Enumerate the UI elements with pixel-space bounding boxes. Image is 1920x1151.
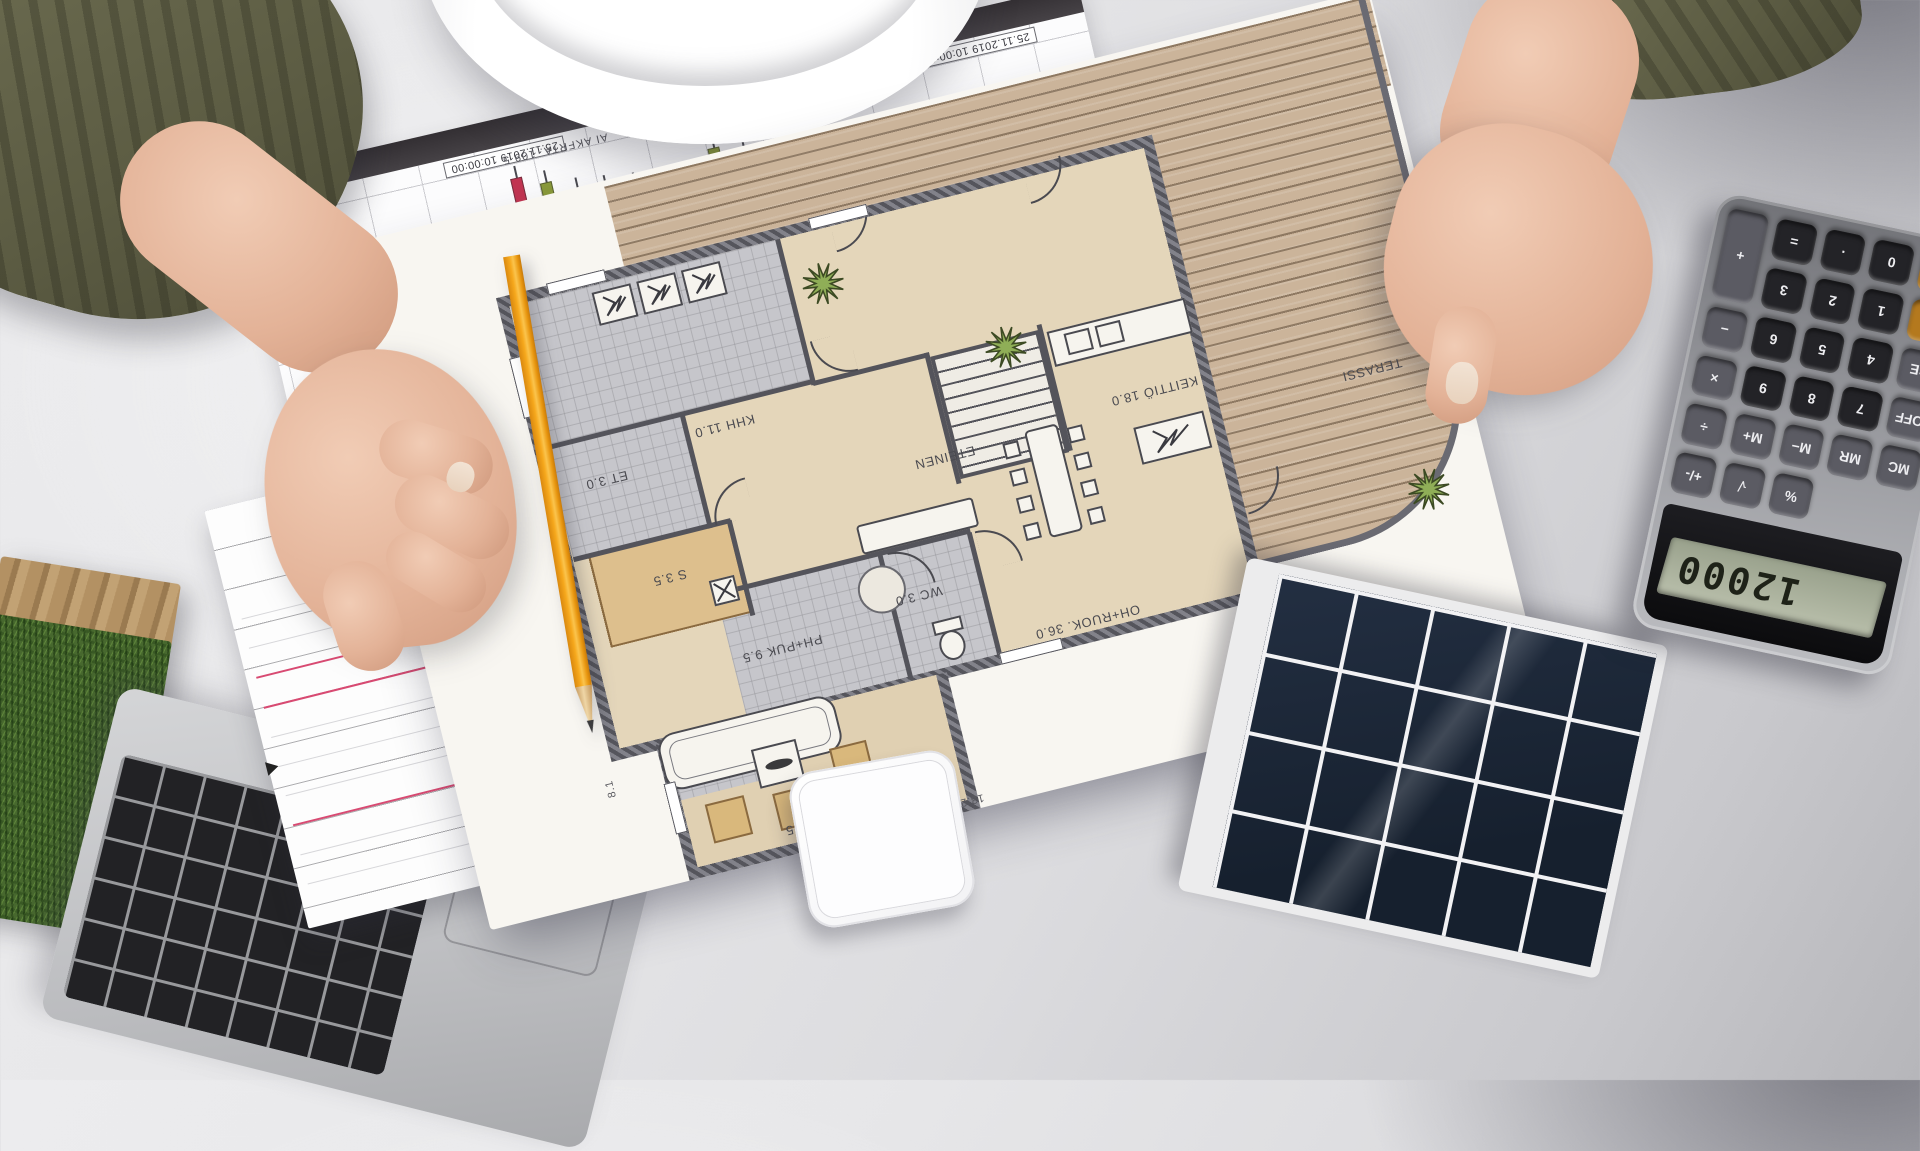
calculator: 12000 %√+/-MCMRM−M+÷OFF789×CE456−AC123+O… [1629, 191, 1920, 678]
calc-key-3: 3 [1760, 267, 1808, 315]
calc-key-5: 5 [1798, 326, 1846, 374]
appliance-zigzag-icon [594, 286, 636, 324]
solar-panel [1177, 557, 1668, 979]
calc-key-√: √ [1718, 462, 1766, 510]
calc-key-2: 2 [1808, 277, 1856, 325]
plant-icon [1403, 464, 1454, 515]
calc-key-9: 9 [1739, 364, 1787, 412]
calc-key-MR: MR [1826, 434, 1874, 482]
calc-key-4: 4 [1847, 336, 1895, 384]
calc-key-8: 8 [1788, 375, 1836, 423]
calc-key-+/-: +/- [1669, 451, 1717, 499]
stove-x-icon [711, 577, 738, 604]
smartphone-screen [796, 757, 968, 921]
calculator-keypad: %√+/-MCMRM−M+÷OFF789×CE456−AC123+ON/C0·= [1669, 208, 1920, 542]
calc-key-OFF: OFF [1885, 395, 1920, 443]
calc-key-AC: AC [1906, 298, 1920, 346]
photo-desk-scene: { "floor_plan": { "rooms": [ {"id": "khh… [0, 0, 1920, 1080]
calc-key-ON/C: ON/C [1916, 249, 1920, 297]
calc-key-−: − [1700, 305, 1748, 353]
calc-key-7: 7 [1836, 385, 1884, 433]
calc-key-CE: CE [1895, 346, 1920, 394]
smartphone [786, 747, 979, 932]
calc-key-%: % [1767, 472, 1815, 520]
calculator-lcd: 12000 [1656, 537, 1887, 639]
calc-key-M−: M− [1777, 423, 1825, 471]
calc-key-6: 6 [1749, 315, 1797, 363]
calc-key-M+: M+ [1728, 413, 1776, 461]
calc-key-0: 0 [1867, 239, 1915, 287]
calc-key-×: × [1690, 354, 1738, 402]
solar-panel-cells [1213, 574, 1657, 967]
appliance-zigzag-icon [683, 263, 725, 301]
fireplace-glass [764, 756, 793, 772]
calc-key-MC: MC [1875, 444, 1920, 492]
dimension-8-1: 8.1 [603, 779, 619, 799]
appliance-zigzag-icon [639, 275, 681, 313]
calc-key-·: · [1819, 228, 1867, 276]
calc-key-=: = [1770, 218, 1818, 266]
calc-key-+: + [1711, 208, 1770, 305]
calc-key-1: 1 [1857, 287, 1905, 335]
calc-key-÷: ÷ [1680, 403, 1728, 451]
